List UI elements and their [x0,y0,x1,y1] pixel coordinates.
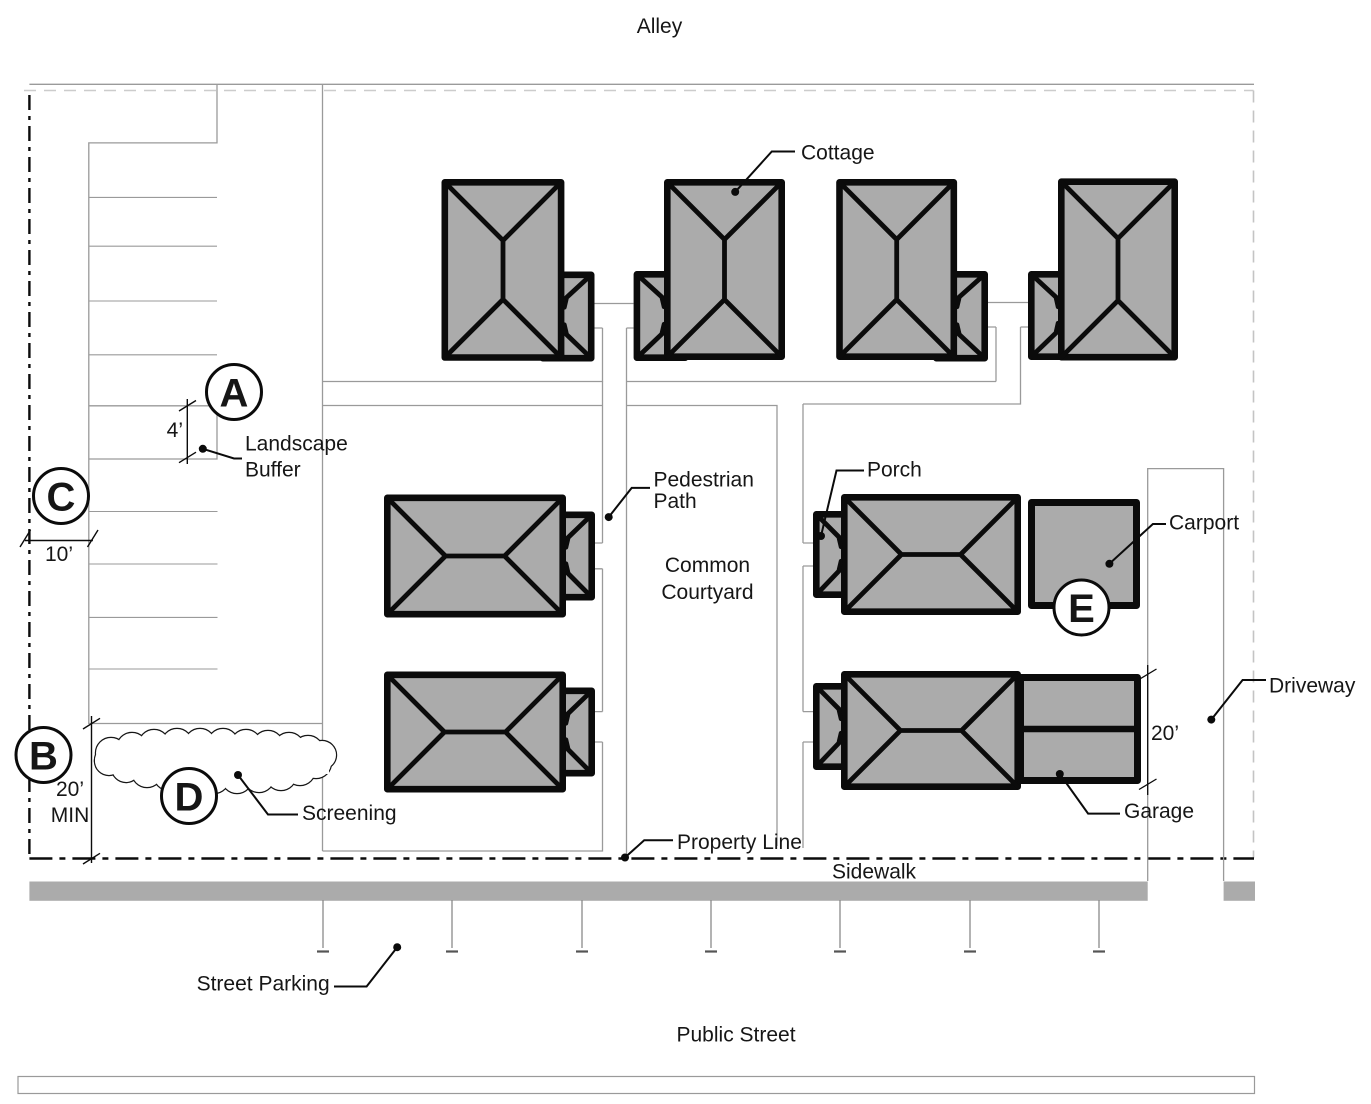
svg-text:4’: 4’ [167,419,183,442]
svg-text:A: A [220,372,249,416]
svg-text:Street Parking: Street Parking [197,973,330,996]
svg-text:Landscape: Landscape [245,432,348,455]
svg-text:Carport: Carport [1169,511,1239,534]
svg-text:Cottage: Cottage [801,142,875,165]
svg-text:10’: 10’ [45,543,73,566]
svg-text:Property Line: Property Line [677,831,802,854]
svg-text:Garage: Garage [1124,800,1194,823]
svg-text:Driveway: Driveway [1269,674,1356,697]
svg-text:Porch: Porch [867,458,922,481]
svg-text:C: C [47,476,76,520]
svg-text:Courtyard: Courtyard [661,581,753,604]
svg-text:Common: Common [665,554,750,577]
svg-text:MIN: MIN [51,804,90,827]
svg-text:20’: 20’ [1151,722,1179,745]
svg-text:E: E [1068,587,1095,631]
svg-text:Sidewalk: Sidewalk [832,860,917,883]
svg-text:Alley: Alley [637,15,683,38]
svg-text:D: D [175,776,204,820]
svg-text:Path: Path [654,490,697,513]
svg-text:Buffer: Buffer [245,458,301,481]
svg-text:Pedestrian: Pedestrian [654,468,754,491]
svg-text:20’: 20’ [56,778,84,801]
svg-text:Screening: Screening [302,802,397,825]
svg-text:B: B [29,735,58,779]
svg-text:Public Street: Public Street [677,1023,796,1046]
